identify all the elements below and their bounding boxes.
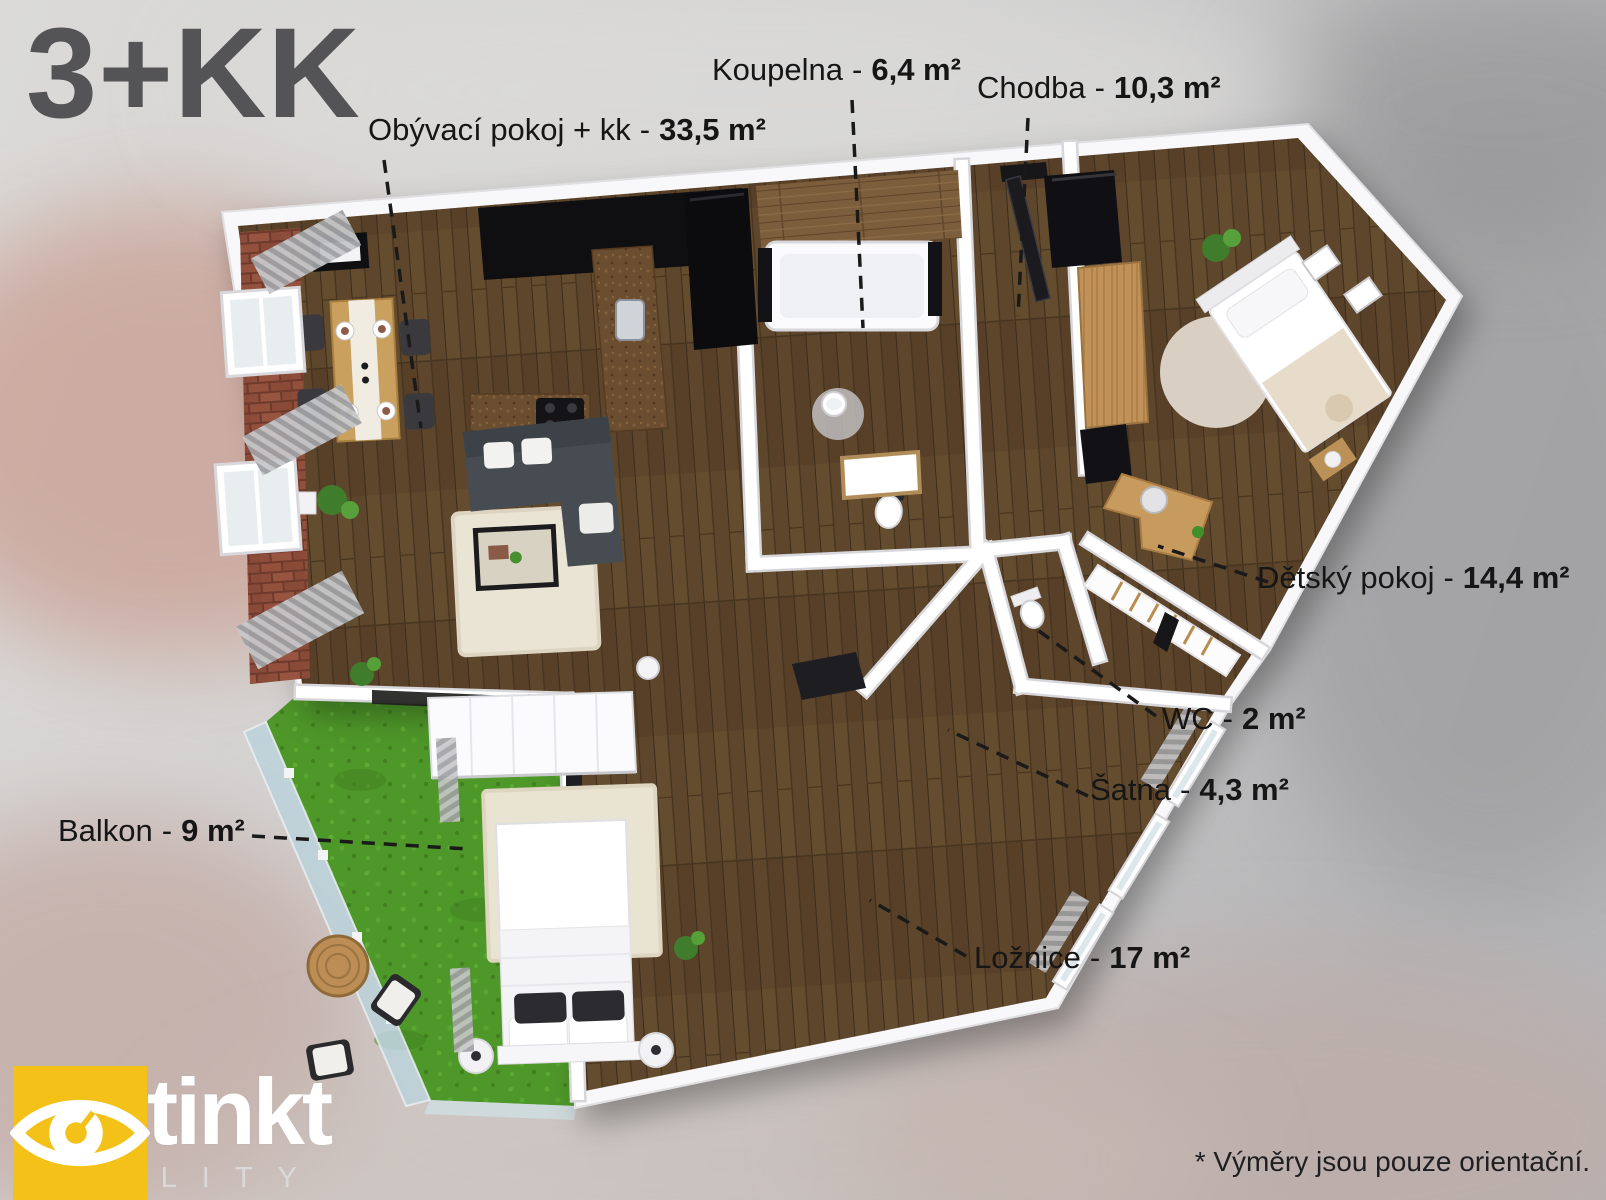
railing-post [318, 850, 328, 860]
room-label-loznice: Ložnice-17 m² [974, 940, 1190, 976]
room-area: 6,4 m² [871, 52, 961, 87]
desk-chair [1141, 487, 1167, 513]
floorplan-svg [0, 0, 1606, 1200]
room-label-detsky-pokoj: Dětský pokoj-14,4 m² [1257, 560, 1570, 596]
room-area: 14,4 m² [1463, 560, 1570, 595]
room-label-chodba: Chodba-10,3 m² [977, 70, 1221, 106]
separator: - [1090, 940, 1100, 975]
bath-caddy [928, 242, 942, 316]
separator: - [1095, 70, 1105, 105]
room-name: Koupelna [712, 52, 843, 87]
separator: - [852, 52, 862, 87]
balcony-table [308, 936, 368, 996]
room-name: Chodba [977, 70, 1086, 105]
room-area: 2 m² [1242, 701, 1306, 736]
separator: - [1443, 560, 1453, 595]
separator: - [1180, 772, 1190, 807]
room-name: Dětský pokoj [1257, 560, 1434, 595]
room-area: 33,5 m² [659, 112, 766, 147]
bathtub [758, 242, 942, 330]
floor-vase [637, 657, 659, 679]
room-label-koupelna: Koupelna-6,4 m² [712, 52, 961, 88]
dark-pillow [572, 990, 625, 1022]
bath-caddy [758, 248, 772, 322]
hall-wardrobe-black [1044, 170, 1122, 268]
dark-pillow [514, 992, 567, 1024]
room-label-wc: WC-2 m² [1162, 701, 1306, 737]
brand-logo: instinkt REALITY [10, 1066, 330, 1195]
railing-post [284, 768, 294, 778]
bathroom-sink [812, 388, 864, 440]
bath-shelf [842, 452, 920, 498]
nightstand-right [639, 1033, 673, 1067]
room-label-balkon: Balkon-9 m² [58, 813, 245, 849]
hall-cabinet-wood [1078, 262, 1148, 428]
room-name: WC [1162, 701, 1214, 736]
separator: - [1223, 701, 1233, 736]
master-wardrobe [428, 692, 636, 778]
room-name: Šatna [1090, 772, 1171, 807]
room-name: Balkon [58, 813, 153, 848]
kitchen-sink [616, 300, 644, 340]
room-name: Ložnice [974, 940, 1081, 975]
sofa-pillow [521, 437, 552, 465]
room-area: 4,3 m² [1199, 772, 1289, 807]
plan-type-title: 3+KK [26, 10, 361, 138]
master-bed [490, 820, 640, 1065]
room-name: Obývací pokoj + kk [368, 112, 631, 147]
footnote: * Výměry jsou pouze orientační. [1195, 1146, 1590, 1178]
page: 3+KK Obývací pokoj + kk-33,5 m² Koupelna… [0, 0, 1606, 1200]
instinkt-eye-icon [10, 1066, 150, 1200]
room-area: 9 m² [181, 813, 245, 848]
room-area: 17 m² [1109, 940, 1190, 975]
dining-chair [399, 319, 431, 357]
sofa-pillow [483, 441, 514, 469]
room-label-satna: Šatna-4,3 m² [1090, 772, 1289, 808]
sofa-throw [579, 502, 615, 534]
room-label-obyvaci-pokoj-kk: Obývací pokoj + kk-33,5 m² [368, 112, 766, 148]
room-area: 10,3 m² [1114, 70, 1221, 105]
separator: - [162, 813, 172, 848]
separator: - [640, 112, 650, 147]
